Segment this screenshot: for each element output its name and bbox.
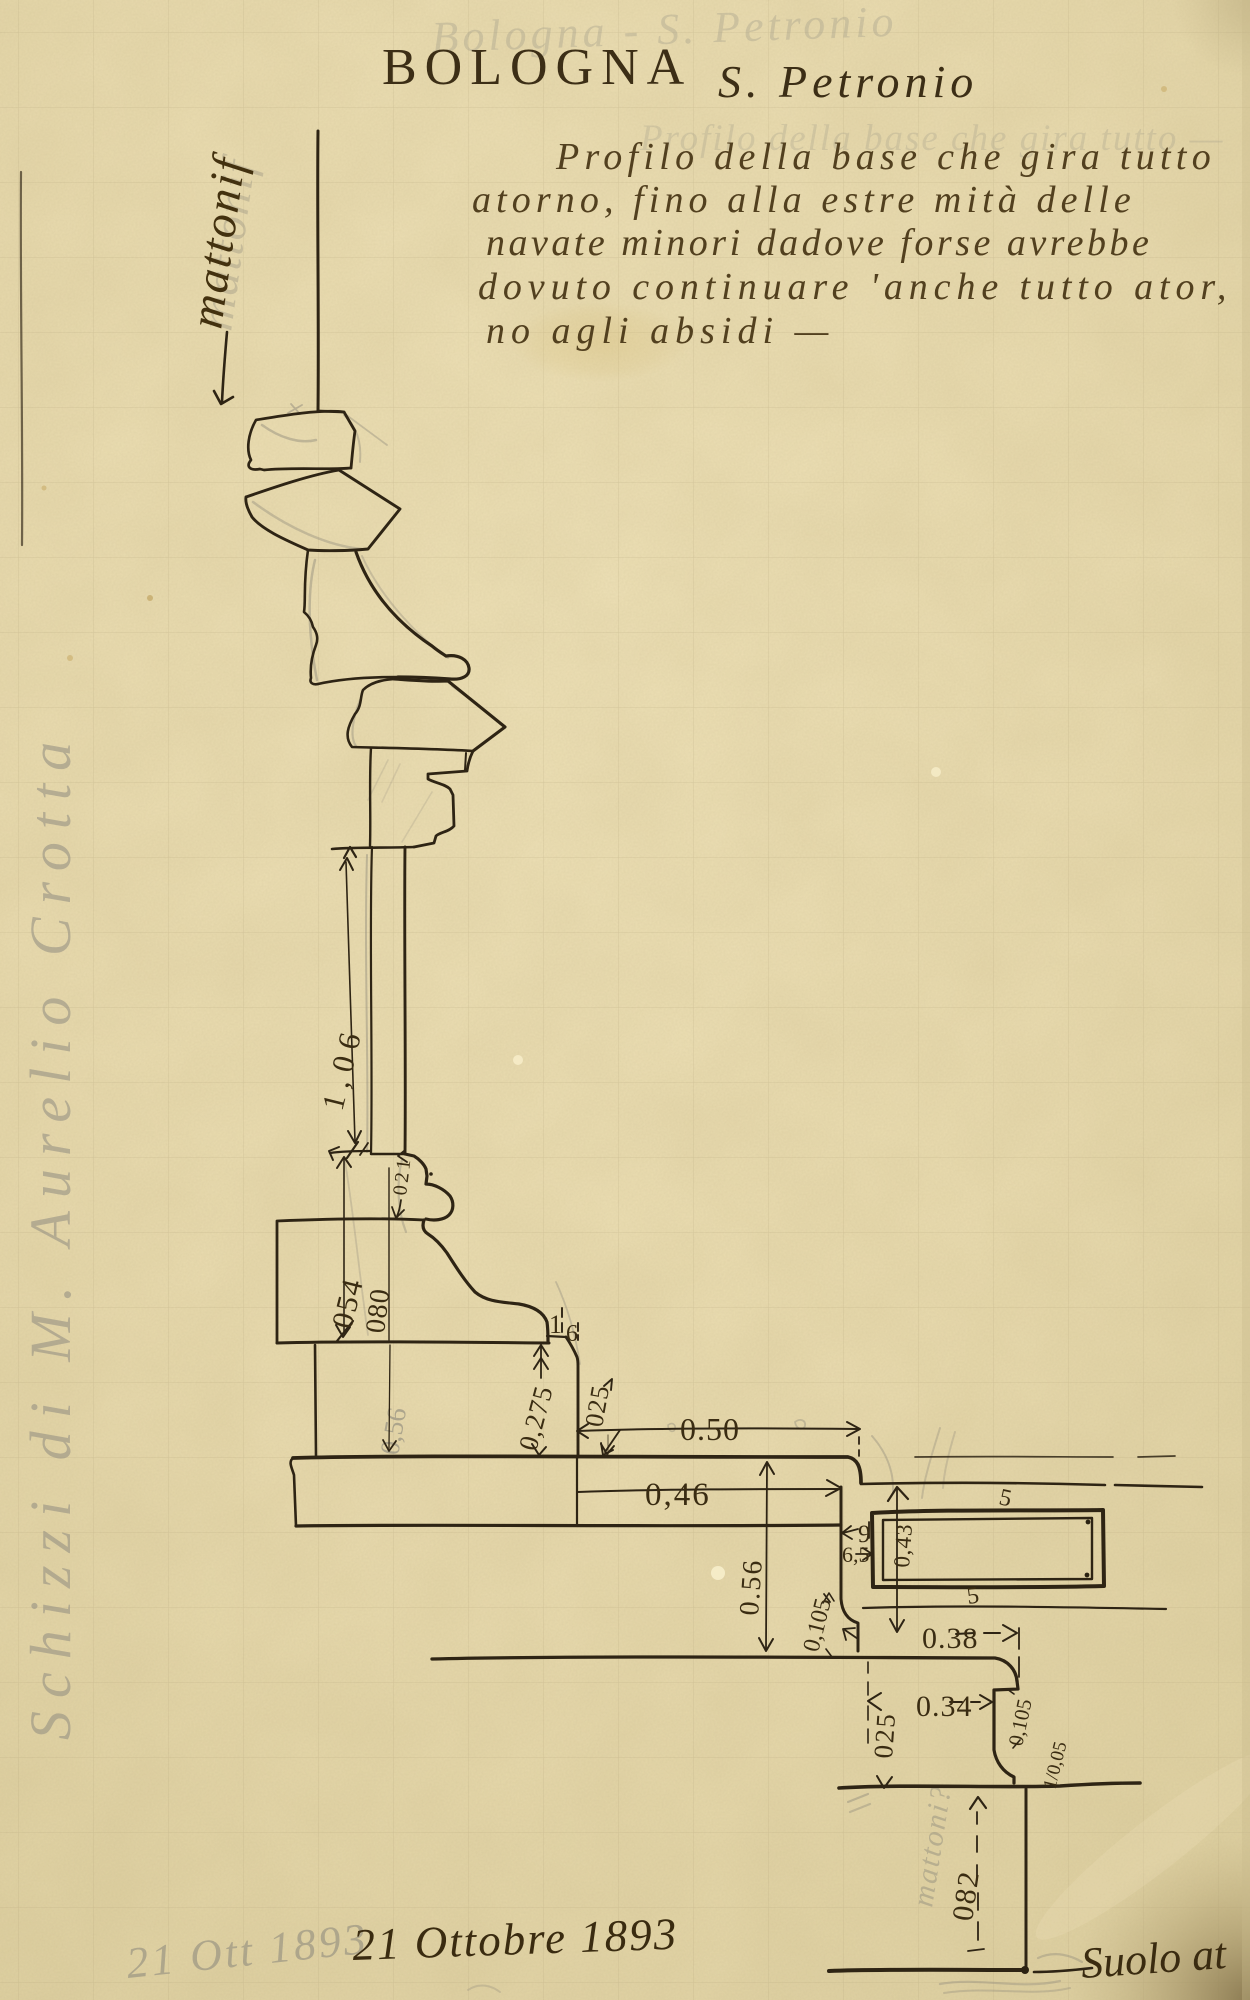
svg-text:082: 082 (946, 1868, 986, 1923)
svg-text:0,46: 0,46 (645, 1477, 711, 1513)
svg-text:dovuto continuare 'anche tutto: dovuto continuare 'anche tutto ator, (478, 266, 1232, 308)
svg-text:atorno, fino alla estre mità d: atorno, fino alla estre mità delle (472, 179, 1136, 221)
svg-text:1: 1 (549, 1310, 562, 1339)
svg-text:0.34: 0.34 (916, 1690, 973, 1723)
svg-text:navate minori dadove forse avr: navate minori dadove forse avrebbe (486, 222, 1152, 264)
svg-text:0.50: 0.50 (680, 1411, 740, 1447)
svg-text:S. Petronio: S. Petronio (718, 56, 978, 107)
svg-text:6: 6 (566, 1321, 578, 1347)
svg-text:Schizzi di M. Aurelio Crotta: Schizzi di M. Aurelio Crotta (18, 729, 83, 1740)
svg-text:6,5: 6,5 (842, 1542, 870, 1567)
svg-text:Suolo at: Suolo at (1079, 1929, 1229, 1988)
svg-text:0,43: 0,43 (889, 1522, 917, 1568)
svg-text:Profilo della base che gira tu: Profilo della base che gira tutto (555, 136, 1216, 178)
svg-text:no agli absidi —: no agli absidi — (486, 310, 834, 352)
svg-text:080: 080 (360, 1286, 396, 1334)
svg-text:0.38: 0.38 (922, 1622, 979, 1655)
svg-text:025: 025 (868, 1711, 901, 1759)
svg-text:BOLOGNA: BOLOGNA (382, 39, 692, 96)
svg-text:0.56: 0.56 (734, 1557, 769, 1616)
